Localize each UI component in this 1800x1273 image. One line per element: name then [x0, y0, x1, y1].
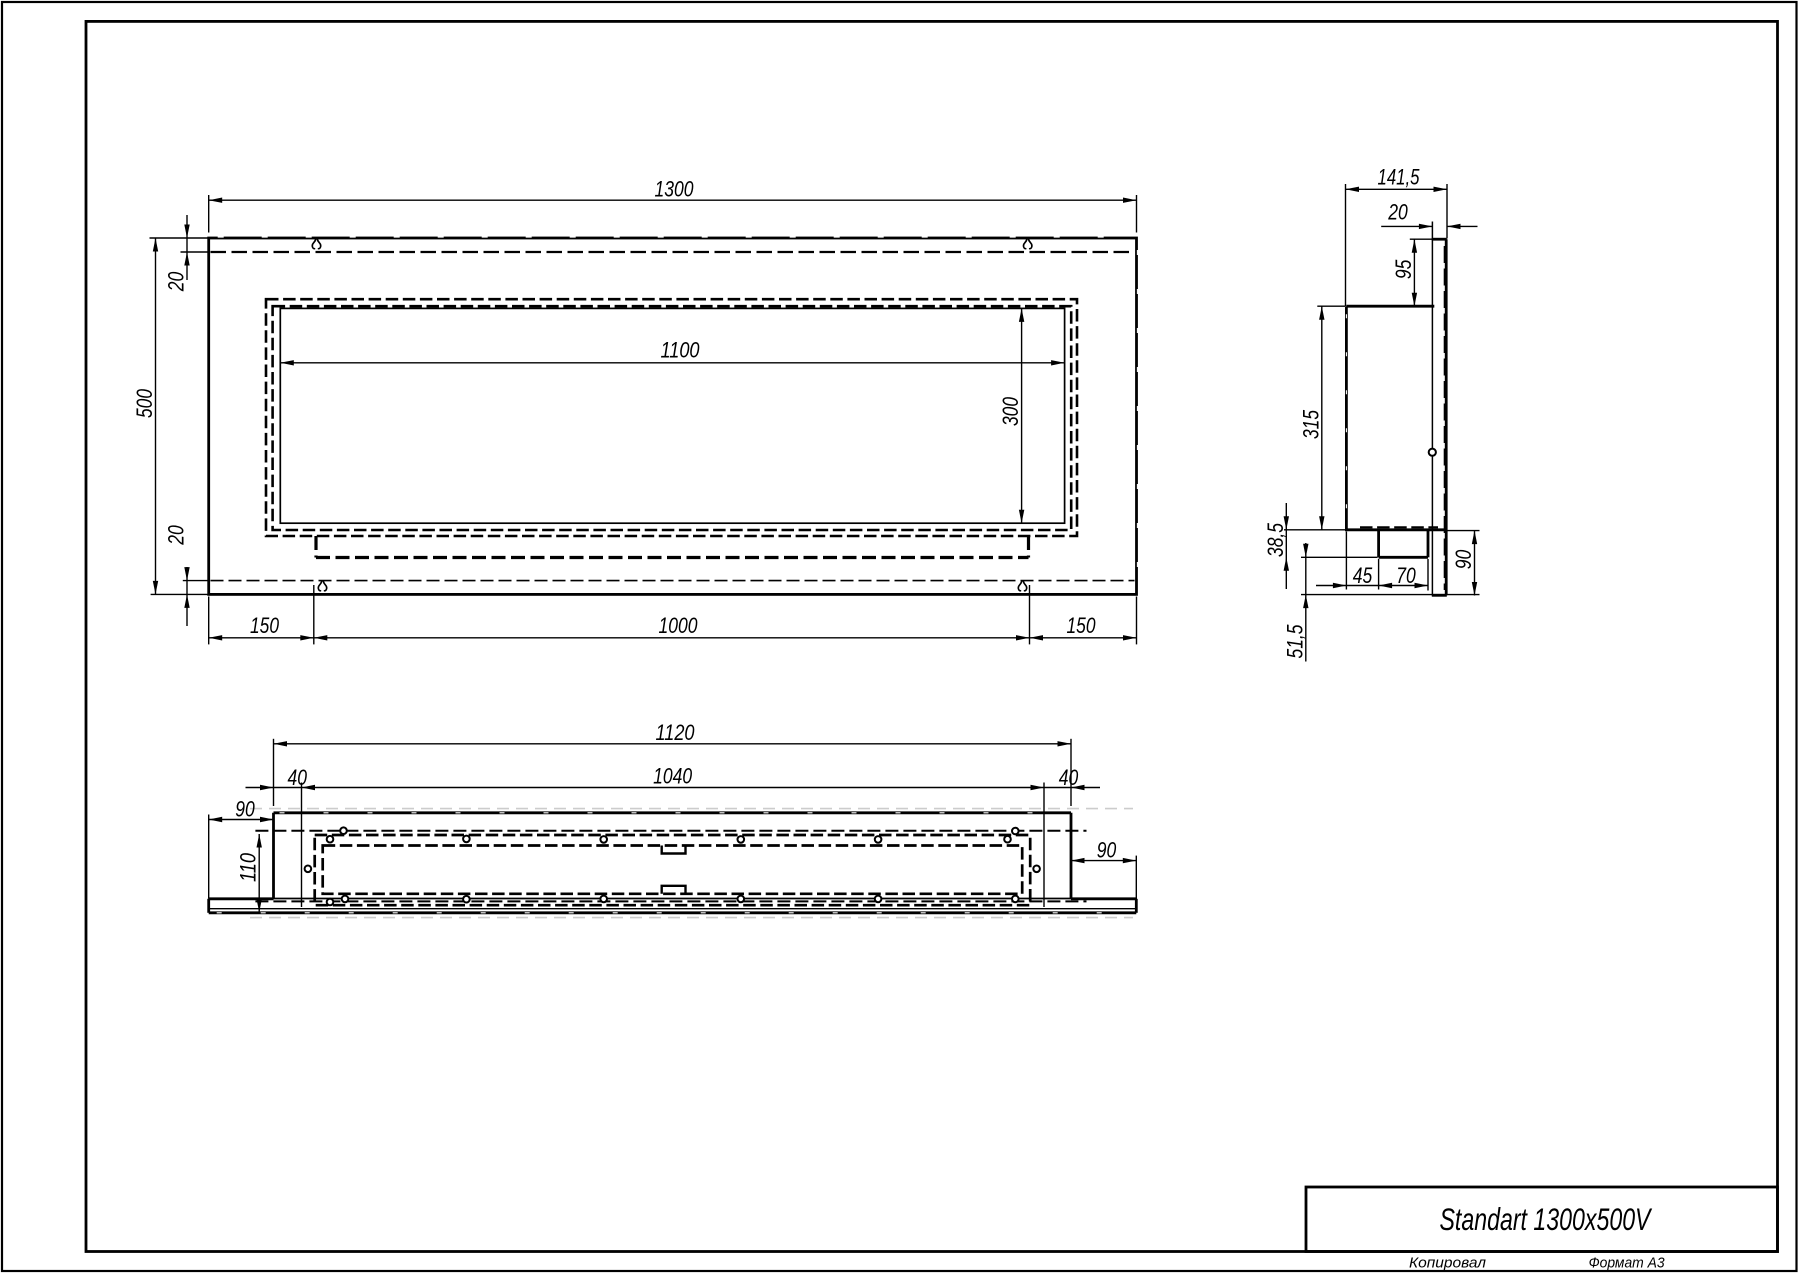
svg-text:1040: 1040: [653, 764, 692, 789]
svg-text:95: 95: [1391, 259, 1416, 279]
svg-text:20: 20: [164, 271, 189, 292]
svg-text:110: 110: [236, 853, 261, 882]
svg-text:1100: 1100: [661, 338, 700, 363]
svg-text:40: 40: [288, 765, 308, 790]
svg-text:Копировал: Копировал: [1409, 1254, 1486, 1271]
svg-text:38,5: 38,5: [1263, 523, 1288, 557]
svg-text:1120: 1120: [656, 720, 695, 745]
svg-text:90: 90: [1451, 549, 1476, 569]
svg-text:20: 20: [1387, 200, 1408, 225]
svg-text:20: 20: [164, 525, 189, 546]
svg-text:Standart 1300x500V: Standart 1300x500V: [1440, 1201, 1653, 1237]
svg-text:141,5: 141,5: [1378, 165, 1420, 190]
svg-text:1000: 1000: [659, 613, 698, 638]
svg-text:90: 90: [1097, 838, 1117, 863]
svg-text:300: 300: [998, 397, 1023, 426]
svg-text:500: 500: [132, 389, 157, 418]
svg-text:Формат А3: Формат А3: [1589, 1254, 1665, 1271]
svg-text:45: 45: [1353, 563, 1373, 588]
svg-text:51,5: 51,5: [1282, 624, 1307, 658]
svg-text:70: 70: [1396, 563, 1416, 588]
svg-text:315: 315: [1298, 410, 1323, 439]
svg-text:150: 150: [1067, 613, 1096, 638]
svg-text:150: 150: [250, 613, 279, 638]
svg-text:40: 40: [1059, 765, 1079, 790]
svg-text:1300: 1300: [655, 177, 694, 202]
svg-text:90: 90: [235, 797, 255, 822]
